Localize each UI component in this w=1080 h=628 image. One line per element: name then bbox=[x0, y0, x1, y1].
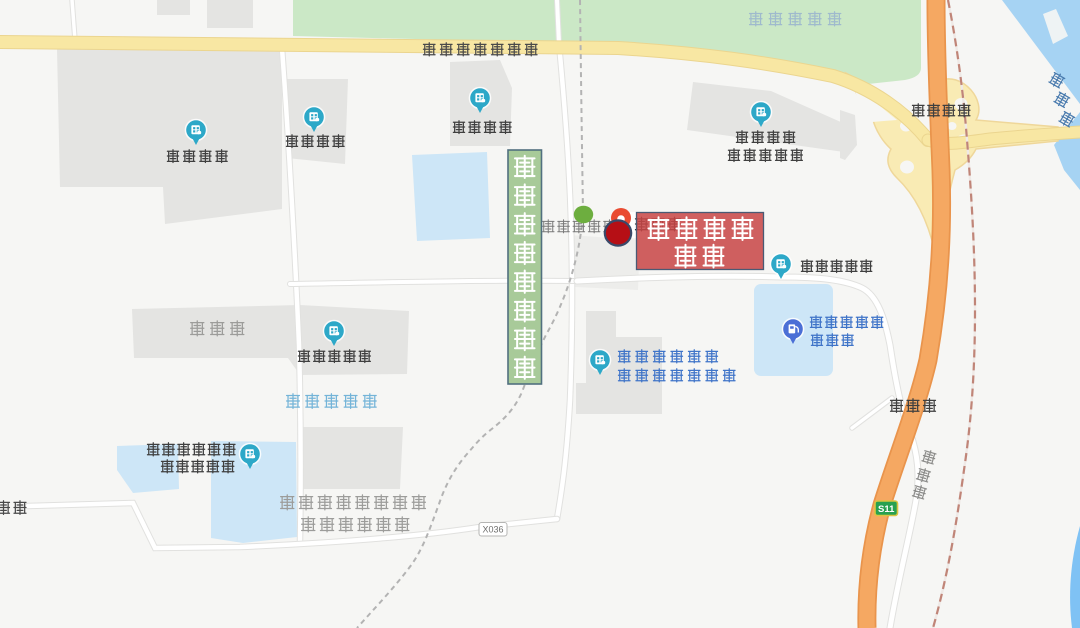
svg-text:S11: S11 bbox=[878, 504, 895, 515]
svg-text:X036: X036 bbox=[482, 525, 503, 535]
